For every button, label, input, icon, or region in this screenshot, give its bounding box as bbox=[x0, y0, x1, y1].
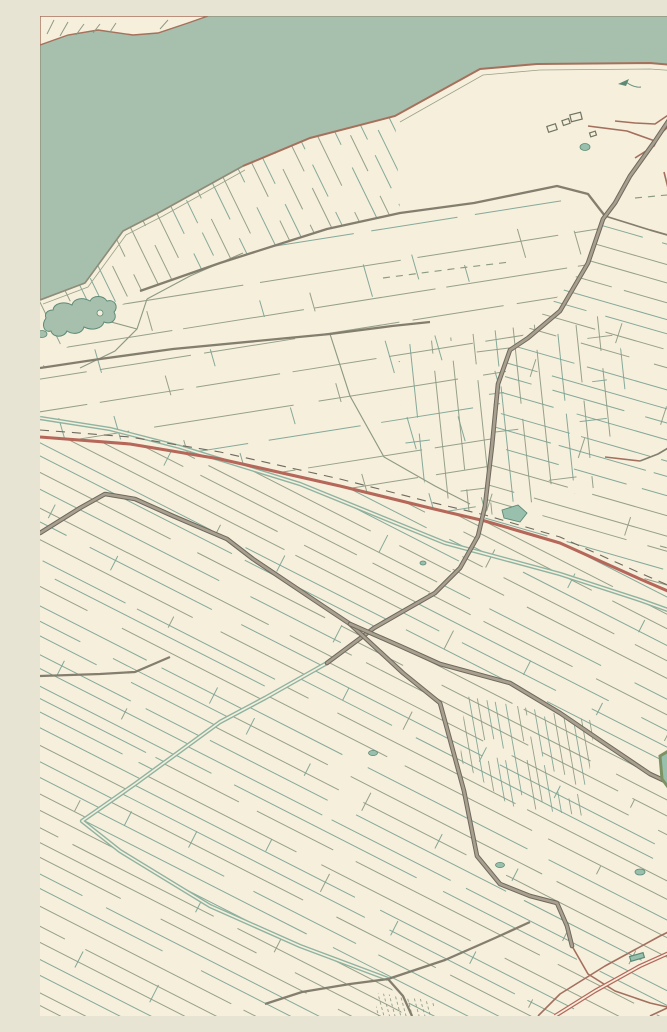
vintage-map bbox=[40, 16, 667, 1016]
small-pond bbox=[420, 561, 426, 565]
small-pond bbox=[635, 869, 645, 875]
small-pond bbox=[496, 862, 505, 867]
small-pond bbox=[369, 750, 378, 755]
small-pond bbox=[580, 144, 590, 151]
map-canvas bbox=[40, 16, 667, 1016]
